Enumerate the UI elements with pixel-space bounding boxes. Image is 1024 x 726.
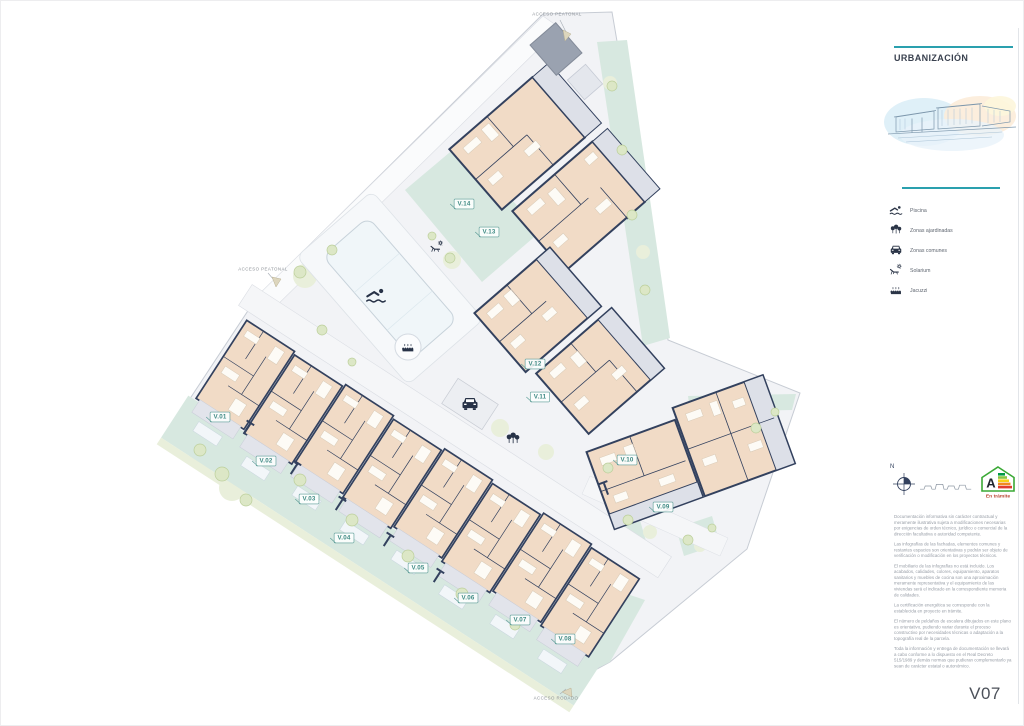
car-icon	[460, 394, 480, 414]
disclaimer-paragraph: Las infografías de las fachadas, element…	[894, 542, 1012, 559]
car-icon	[888, 242, 904, 258]
jacuzzi-icon	[395, 334, 422, 361]
villa-badge-v09: V.09	[653, 502, 673, 513]
compass-north-label: N	[890, 464, 894, 470]
legend-item: Zonas comunes	[888, 240, 976, 260]
legend-item: Zonas ajardinadas	[888, 220, 976, 240]
energy-status: En trámite	[986, 493, 1010, 499]
legend: PiscinaZonas ajardinadasZonas comunesSol…	[888, 200, 976, 300]
divider	[902, 187, 1000, 189]
sheet-code: V07	[950, 684, 1020, 704]
legend-item: Piscina	[888, 200, 976, 220]
legend-label: Piscina	[910, 207, 927, 213]
villa-badge-v07: V.07	[510, 615, 530, 626]
access-label-top: ACCESO PEATONAL	[532, 12, 581, 17]
legend-label: Solarium	[910, 267, 931, 273]
villa-badge-v02: V.02	[256, 456, 276, 467]
villa-badge-v13: V.13	[479, 227, 499, 238]
access-label-bottom: ACCESO RODADO	[534, 696, 579, 701]
energy-rating-badge: A En trámite	[980, 466, 1016, 492]
jacuzzi-icon	[888, 282, 904, 298]
building-sketch	[882, 80, 1022, 158]
legend-label: Zonas ajardinadas	[910, 227, 953, 233]
disclaimer-text: Documentación informativa sin carácter c…	[894, 514, 1012, 674]
disclaimer-paragraph: Toda la información y entrega de documen…	[894, 646, 1012, 669]
villa-badge-v03: V.03	[299, 494, 319, 505]
trees-icon	[505, 431, 522, 448]
villa-badge-v05: V.05	[408, 563, 428, 574]
villa-badge-v11: V.11	[530, 392, 550, 403]
villa-badge-v08: V.08	[555, 634, 575, 645]
legend-item: Solarium	[888, 260, 976, 280]
legend-item: Jacuzzi	[888, 280, 976, 300]
plan-sheet: V.01V.02V.03V.04V.05V.06V.07V.08V.09V.10…	[0, 0, 1024, 726]
villa-badge-v10: V.10	[617, 455, 637, 466]
page-edge-line	[1018, 28, 1019, 704]
villa-badge-v14: V.14	[454, 199, 474, 210]
legend-label: Jacuzzi	[910, 287, 927, 293]
swimmer-icon	[365, 284, 387, 306]
disclaimer-paragraph: El mobiliario de las infografías no está…	[894, 563, 1012, 598]
swimmer-icon	[888, 202, 904, 218]
disclaimer-paragraph: La certificación energética se correspon…	[894, 603, 1012, 615]
divider	[894, 46, 1013, 48]
compass-icon: N	[892, 470, 916, 496]
energy-letter: A	[986, 476, 996, 491]
legend-label: Zonas comunes	[910, 247, 947, 253]
sun-lounger-icon	[888, 262, 904, 278]
sun-lounger-icon	[430, 240, 445, 255]
disclaimer-paragraph: Documentación informativa sin carácter c…	[894, 514, 1012, 537]
sidebar: URBANIZACIÓN PiscinaZonas ajardinadasZon…	[880, 0, 1024, 726]
trees-icon	[888, 222, 904, 238]
villa-badge-v06: V.06	[458, 593, 478, 604]
villa-badge-v01: V.01	[210, 412, 230, 423]
elevation-sketch-icon	[920, 478, 976, 494]
villa-badge-v04: V.04	[334, 533, 354, 544]
sidebar-title: URBANIZACIÓN	[894, 53, 968, 63]
access-label-left: ACCESO PEATONAL	[238, 267, 287, 272]
villa-badge-v12: V.12	[525, 359, 545, 370]
disclaimer-paragraph: El número de peldaños de escalera dibuja…	[894, 619, 1012, 642]
